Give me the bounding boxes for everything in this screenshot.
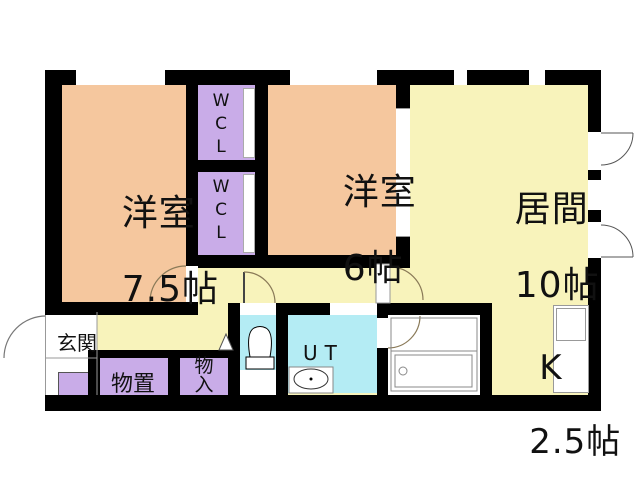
wcl1-char-w: W <box>213 90 230 113</box>
wcl2-char-l: L <box>216 222 225 245</box>
living-name: 居間 <box>515 189 589 230</box>
label-utility: UT <box>303 341 344 365</box>
label-wcl2: W C L <box>211 176 231 245</box>
toilet-icon <box>246 327 274 370</box>
balcony-door-1-arc <box>601 133 633 165</box>
closet-door-marker <box>219 334 233 350</box>
wcl2-char-w: W <box>213 176 230 199</box>
floor-plan: 洋室 7.5帖 洋室 6帖 居間 10帖 K 2.5帖 玄関 物置 物 入 W … <box>0 0 640 480</box>
washbasin-icon <box>289 367 333 393</box>
label-entrance: 玄関 <box>57 327 97 356</box>
label-kitchen: K 2.5帖 <box>482 313 621 480</box>
toilet-door-arc <box>244 272 275 303</box>
closet-char-2: 入 <box>194 376 213 395</box>
label-bedroom1: 洋室 7.5帖 <box>72 157 219 347</box>
bedroom2-size: 6帖 <box>343 248 404 289</box>
wcl1-char-l: L <box>216 136 225 159</box>
entrance-door-arc <box>4 316 46 358</box>
living-size: 10帖 <box>515 265 600 306</box>
bedroom2-name: 洋室 <box>343 172 417 213</box>
label-wcl1: W C L <box>211 90 231 159</box>
label-bedroom2: 洋室 6帖 <box>293 136 417 326</box>
kitchen-size: 2.5帖 <box>529 422 621 462</box>
bedroom1-size: 7.5帖 <box>122 269 219 310</box>
label-storage: 物置 <box>111 366 155 398</box>
wcl2-char-c: C <box>215 199 227 222</box>
balcony-door-2-arc <box>601 225 633 257</box>
wcl1-char-c: C <box>215 113 227 136</box>
label-closet: 物 入 <box>194 357 214 395</box>
kitchen-name: K <box>529 348 562 388</box>
bedroom1-name: 洋室 <box>122 193 196 234</box>
